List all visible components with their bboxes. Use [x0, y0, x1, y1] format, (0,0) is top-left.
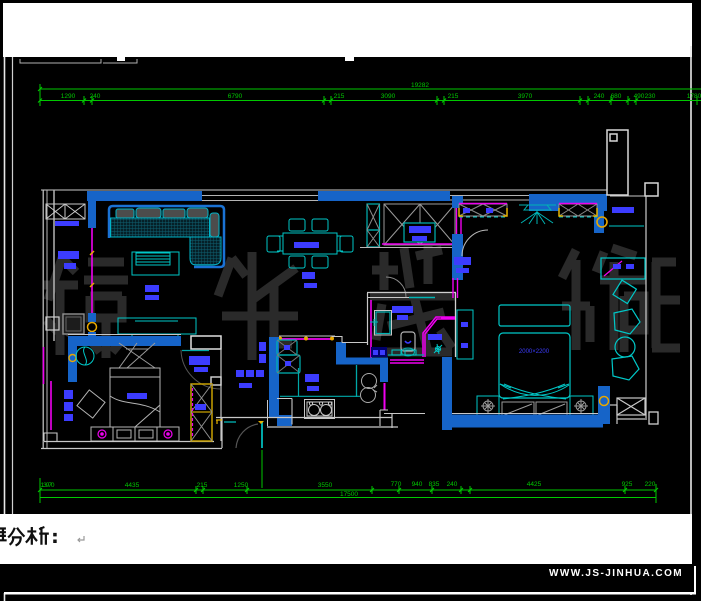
svg-text:17500: 17500: [340, 491, 358, 498]
svg-text:240: 240: [90, 93, 101, 100]
svg-text:835: 835: [429, 481, 440, 488]
svg-text:215: 215: [197, 482, 208, 489]
svg-text:4435: 4435: [125, 482, 140, 489]
svg-text:240: 240: [447, 481, 458, 488]
svg-text:940: 940: [412, 481, 423, 488]
svg-text:240: 240: [594, 93, 605, 100]
svg-text:WWW.JS-JINHUA.COM: WWW.JS-JINHUA.COM: [549, 568, 683, 579]
svg-text:3090: 3090: [381, 93, 396, 100]
svg-text:19282: 19282: [411, 82, 429, 89]
svg-text:13970: 13970: [40, 482, 54, 489]
svg-text:215: 215: [334, 93, 345, 100]
svg-text:925: 925: [622, 481, 633, 488]
svg-text:3550: 3550: [318, 482, 333, 489]
svg-text:230: 230: [645, 93, 656, 100]
svg-text:1780: 1780: [687, 93, 701, 100]
svg-text:3970: 3970: [518, 93, 533, 100]
svg-text:680: 680: [611, 93, 622, 100]
svg-text:4425: 4425: [527, 481, 542, 488]
svg-text:1290: 1290: [61, 93, 76, 100]
svg-text:2000×2200: 2000×2200: [519, 349, 550, 355]
svg-text:220: 220: [645, 481, 656, 488]
svg-text:215: 215: [448, 93, 459, 100]
svg-text:1250: 1250: [234, 482, 249, 489]
svg-text:490: 490: [634, 93, 645, 100]
svg-text:6790: 6790: [228, 93, 243, 100]
svg-text:770: 770: [391, 481, 402, 488]
